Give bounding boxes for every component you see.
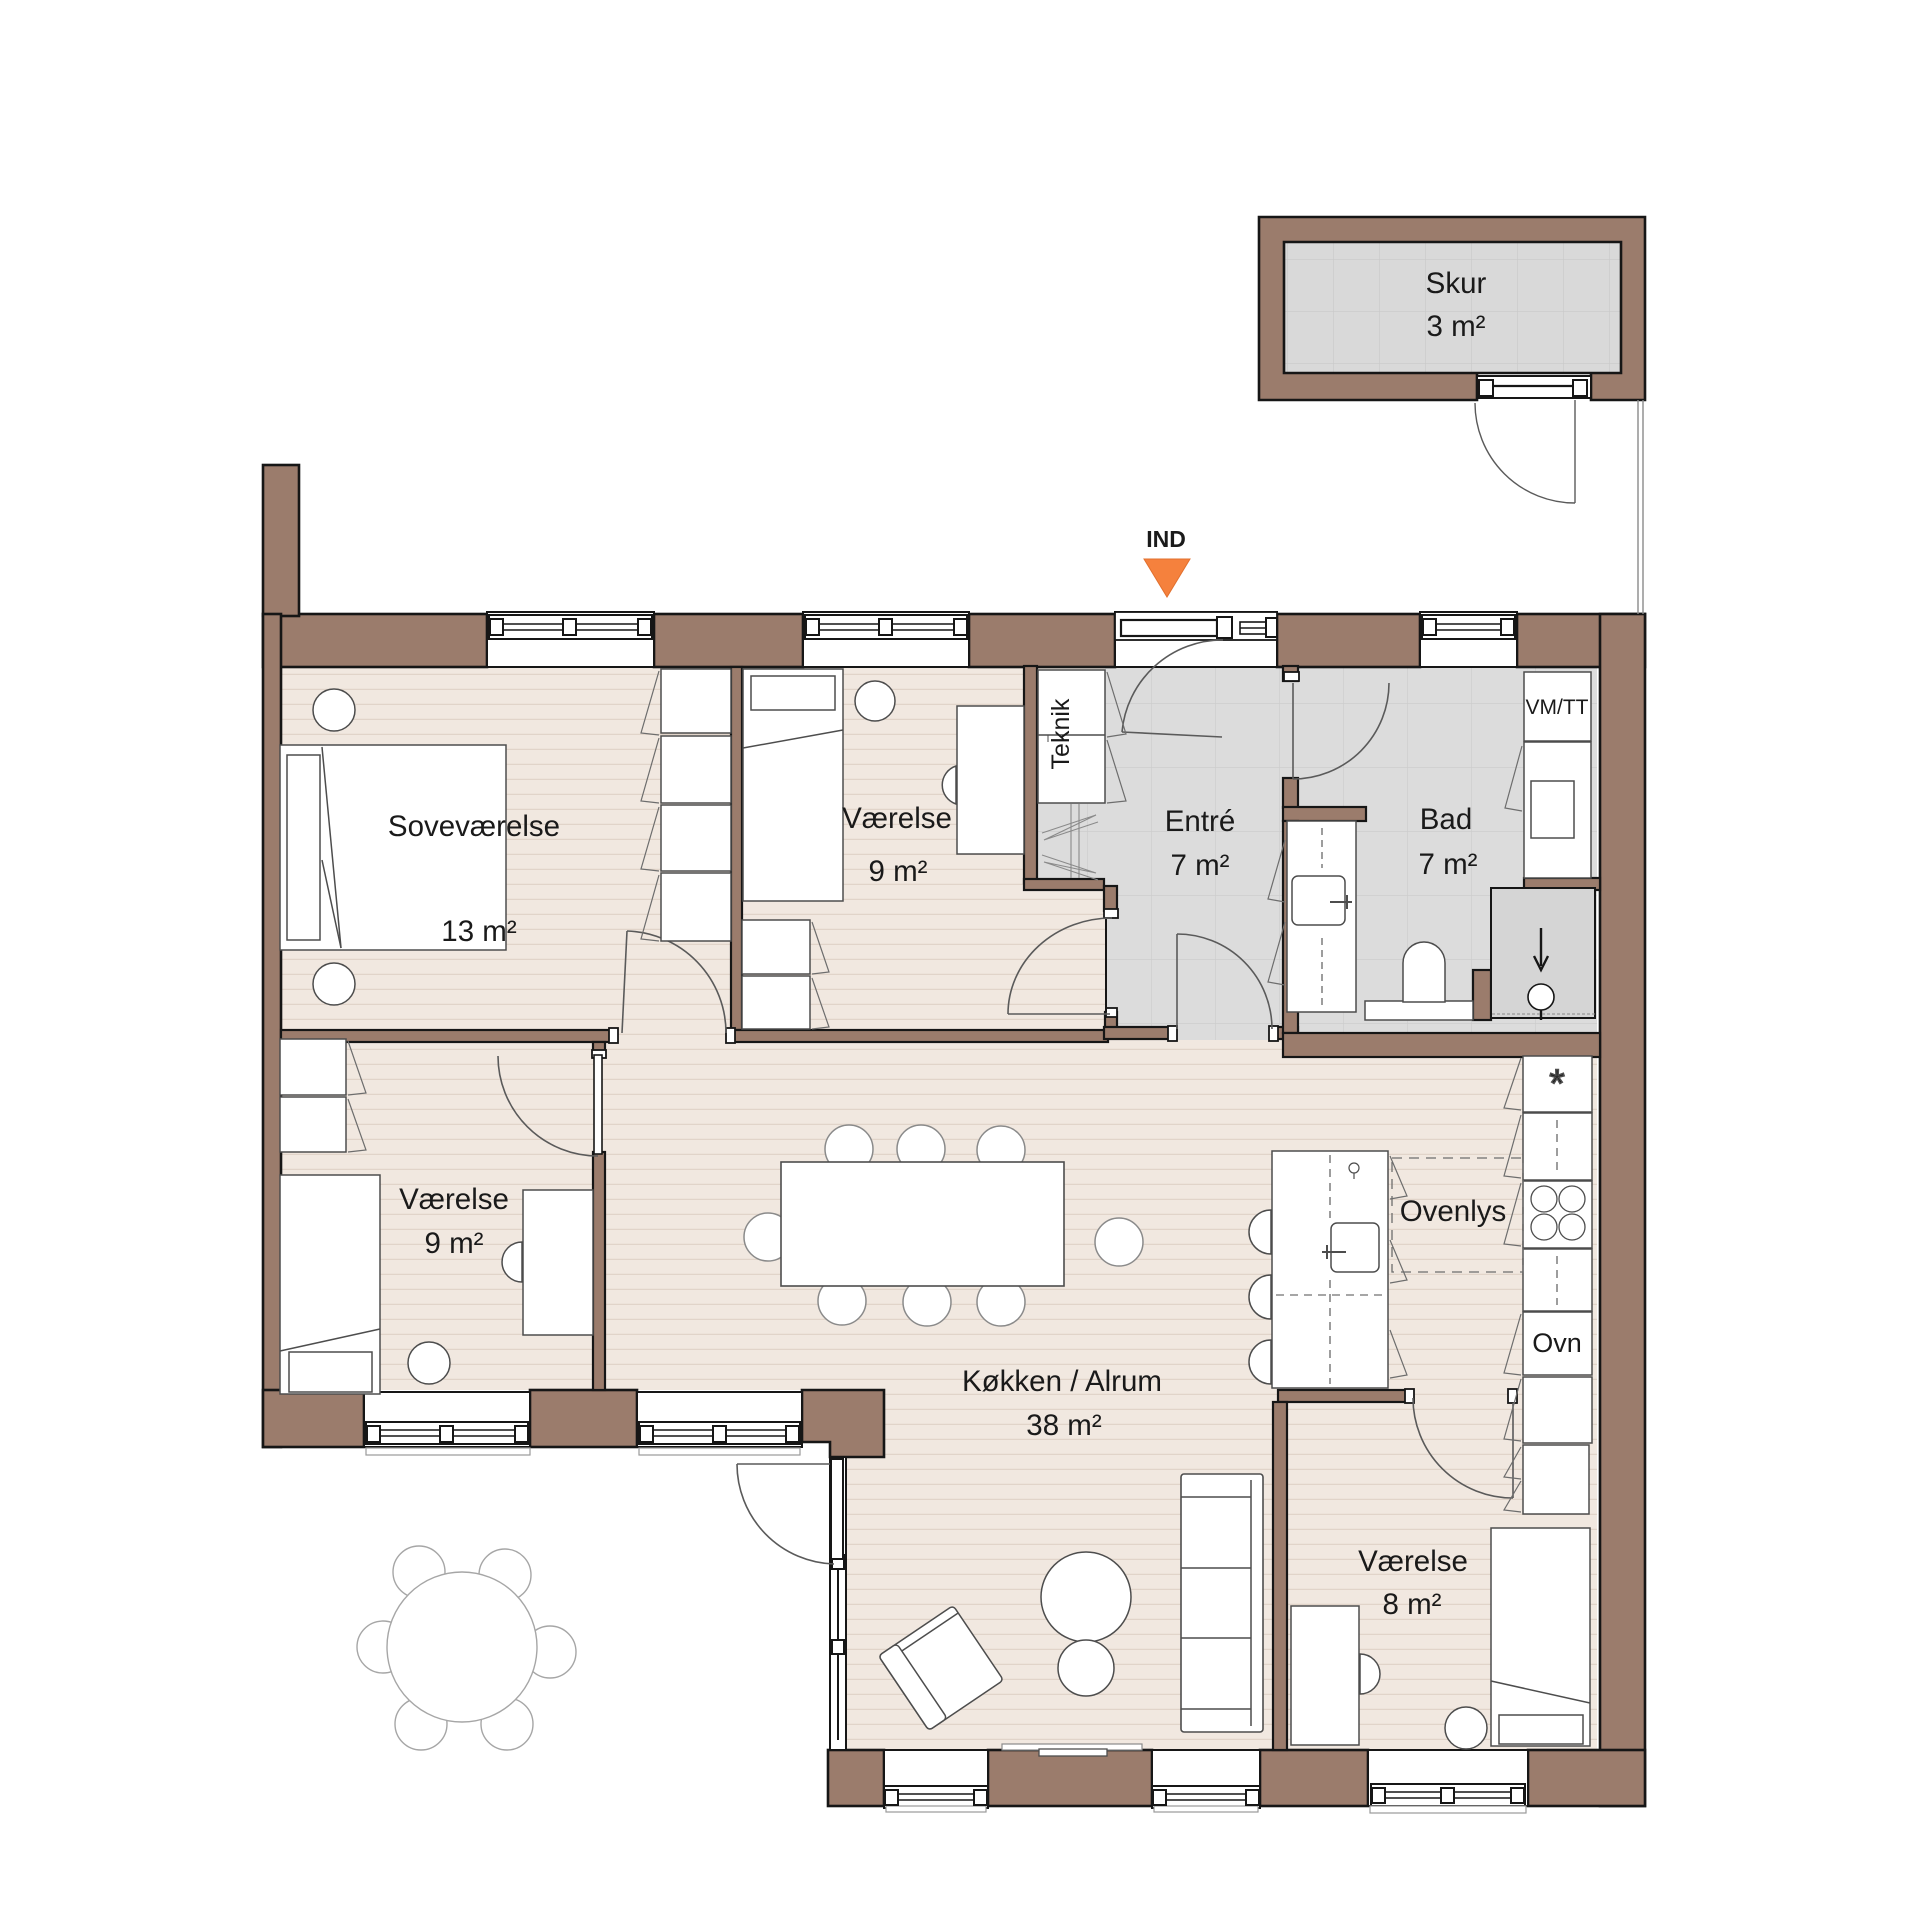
svg-text:3 m²: 3 m²: [1427, 310, 1486, 343]
svg-text:Teknik: Teknik: [1047, 698, 1075, 769]
svg-text:38 m²: 38 m²: [1026, 1409, 1102, 1442]
svg-text:13 m²: 13 m²: [441, 915, 517, 948]
svg-text:Køkken / Alrum: Køkken / Alrum: [962, 1365, 1162, 1398]
svg-text:Skur: Skur: [1426, 267, 1487, 300]
svg-text:Værelse: Værelse: [399, 1183, 509, 1216]
svg-text:Ovenlys: Ovenlys: [1400, 1195, 1507, 1228]
svg-text:IND: IND: [1146, 526, 1186, 552]
svg-text:Værelse: Værelse: [1358, 1545, 1468, 1578]
svg-text:8 m²: 8 m²: [1383, 1588, 1442, 1621]
svg-text:7 m²: 7 m²: [1419, 848, 1478, 881]
svg-text:VM/TT: VM/TT: [1526, 696, 1589, 719]
svg-text:Bad: Bad: [1420, 803, 1473, 836]
svg-text:Værelse: Værelse: [842, 802, 952, 835]
svg-text:Soveværelse: Soveværelse: [388, 810, 560, 843]
svg-text:9 m²: 9 m²: [425, 1227, 484, 1260]
svg-text:7 m²: 7 m²: [1171, 849, 1230, 882]
svg-text:Entré: Entré: [1165, 805, 1236, 838]
svg-text:9 m²: 9 m²: [869, 855, 928, 888]
svg-text:Ovn: Ovn: [1532, 1328, 1582, 1358]
svg-text:*: *: [1549, 1062, 1565, 1106]
